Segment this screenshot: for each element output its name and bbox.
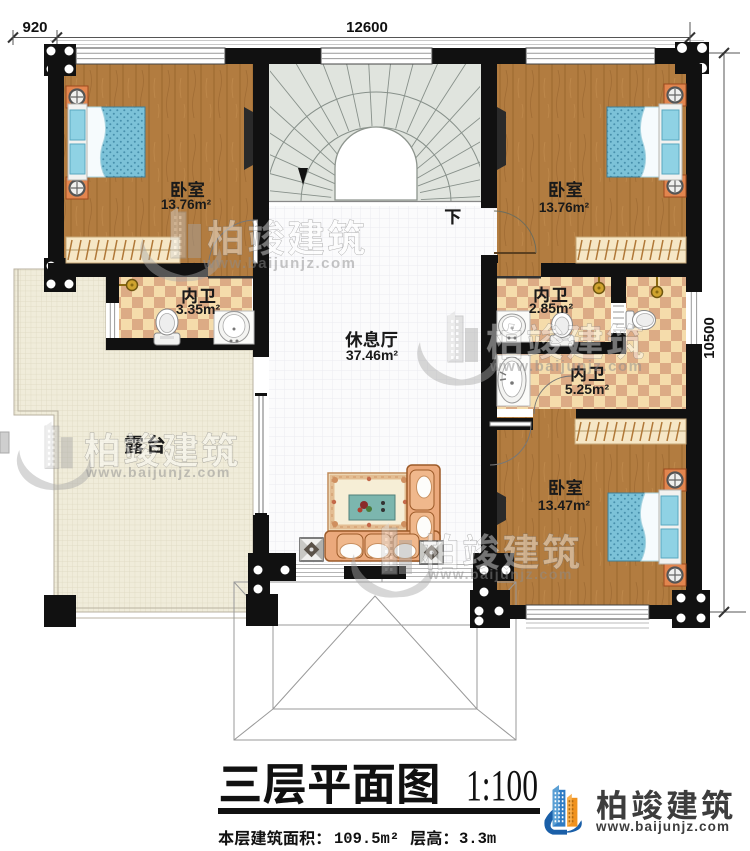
svg-text:www.baijunjz.com: www.baijunjz.com: [202, 255, 356, 272]
svg-text:www.baijunjz.com: www.baijunjz.com: [489, 358, 643, 375]
svg-text:13.76m²: 13.76m²: [161, 197, 212, 212]
svg-text:3.3m: 3.3m: [459, 830, 496, 848]
svg-text:www.baijunjz.com: www.baijunjz.com: [427, 566, 573, 582]
svg-text:5.25m²: 5.25m²: [565, 381, 610, 397]
svg-text:13.47m²: 13.47m²: [538, 497, 590, 513]
svg-text:920: 920: [22, 19, 47, 36]
svg-text:10500: 10500: [701, 317, 718, 359]
svg-text:13.76m²: 13.76m²: [539, 200, 590, 215]
svg-text:3.35m²: 3.35m²: [176, 301, 221, 317]
svg-text:www.baijunjz.com: www.baijunjz.com: [595, 819, 730, 834]
svg-text:109.5m²: 109.5m²: [334, 830, 399, 848]
svg-text:12600: 12600: [346, 19, 388, 36]
svg-text:2.85m²: 2.85m²: [529, 300, 574, 316]
svg-text:www.baijunjz.com: www.baijunjz.com: [85, 464, 231, 480]
svg-text:37.46m²: 37.46m²: [346, 347, 398, 363]
svg-text:1:100: 1:100: [466, 761, 538, 810]
